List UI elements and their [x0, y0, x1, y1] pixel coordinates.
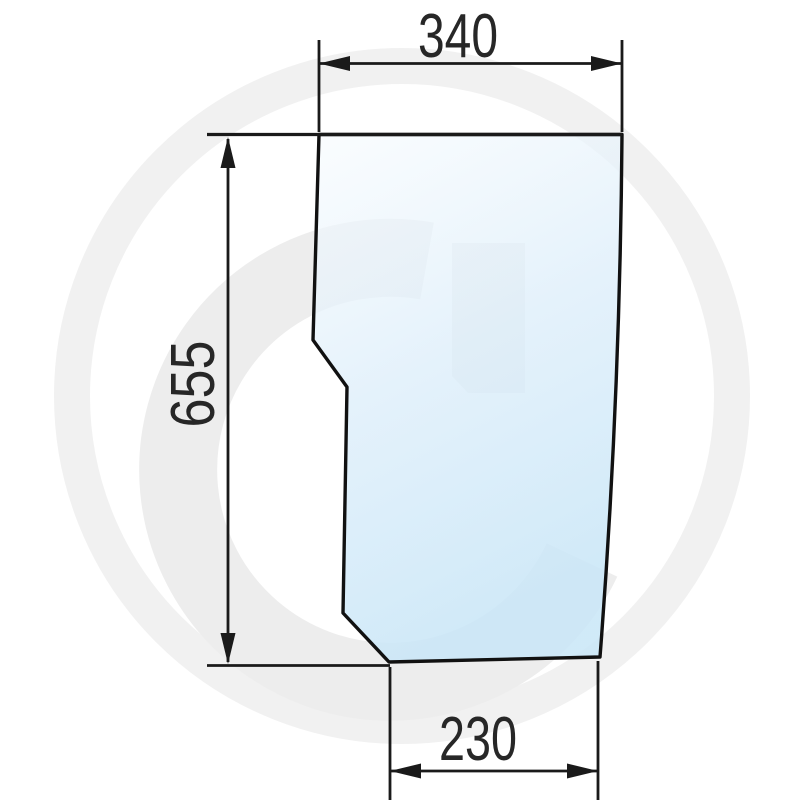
dimension-label-left-height: 655: [159, 341, 228, 428]
arrowhead-230-left: [390, 764, 421, 779]
dimension-label-bottom-width: 230: [439, 705, 517, 774]
drawing-svg: 340 655 230: [0, 0, 800, 800]
glass-pane-shape: [313, 135, 622, 663]
arrowhead-655-top: [221, 137, 236, 168]
glass-pane-technical-drawing: 340 655 230: [0, 0, 800, 800]
arrowhead-230-right: [567, 764, 598, 779]
dimension-label-top-width: 340: [418, 2, 498, 71]
arrowhead-340-right: [591, 56, 622, 71]
